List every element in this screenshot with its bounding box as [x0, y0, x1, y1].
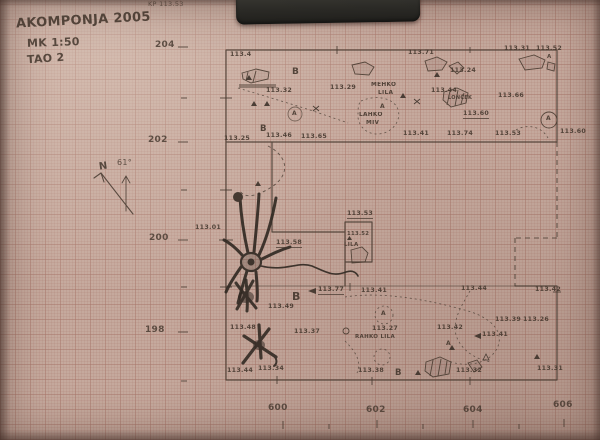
elevation-label: 113.52 — [347, 232, 369, 237]
plan-annotation-labels: 113.4B113.32113.29113.71113.31113.52A113… — [0, 0, 600, 440]
layer-letter-label: B — [395, 369, 402, 378]
note-label: LILA — [378, 91, 393, 97]
elevation-label: 113.52 — [536, 46, 562, 52]
elevation-label: 113.44 — [431, 88, 457, 94]
elevation-label: 113.77 — [318, 287, 344, 295]
note-label: RAHKO LILA — [355, 335, 395, 341]
elevation-label: 113.25 — [224, 136, 250, 142]
note-label: LAHKO — [359, 113, 383, 119]
elevation-label: 113.01 — [195, 225, 221, 231]
layer-letter-label: B — [292, 68, 299, 77]
elevation-label: 113.46 — [266, 133, 292, 139]
elevation-label: 113.44 — [227, 368, 253, 374]
elevation-label: 113.42 — [437, 325, 463, 331]
graph-paper-sheet: AKOMPONJA 2005 MK 1:50 TAO 2 KP 113.53 N… — [0, 0, 600, 440]
layer-letter-label: A — [547, 55, 552, 61]
layer-letter-label: A — [292, 111, 297, 117]
elevation-label: 113.27 — [372, 326, 398, 332]
elevation-label: 113.4 — [230, 52, 251, 58]
layer-letter-label: A — [381, 311, 386, 317]
elevation-label: 113.26 — [523, 317, 549, 323]
elevation-label: 113.71 — [408, 50, 434, 56]
elevation-label: 113.53 — [495, 131, 521, 137]
elevation-label: 113.48 — [230, 325, 256, 331]
elevation-label: 113.32 — [456, 368, 482, 374]
elevation-label: 113.74 — [447, 131, 473, 137]
elevation-label: 113.24 — [450, 68, 476, 74]
elevation-label: 113.65 — [301, 134, 327, 140]
elevation-label: 113.32 — [266, 88, 292, 94]
elevation-label: 113.60 — [463, 111, 489, 119]
elevation-label: 113.39 — [495, 317, 521, 323]
elevation-label: 113.41 — [403, 131, 429, 137]
elevation-label: 113.31 — [537, 366, 563, 372]
elevation-label: 113.53 — [347, 211, 373, 219]
elevation-label: 113.34 — [258, 366, 284, 372]
elevation-label: 113.44 — [461, 286, 487, 292]
note-label: LONČEK — [448, 96, 472, 101]
layer-letter-label: A — [380, 104, 385, 110]
elevation-label: 113.41 — [482, 332, 508, 338]
elevation-label: 113.66 — [498, 93, 524, 99]
elevation-label: 113.58 — [276, 240, 302, 248]
elevation-label: 113.42 — [535, 287, 561, 293]
elevation-label: 113.29 — [330, 85, 356, 91]
layer-letter-label: B — [292, 291, 301, 302]
elevation-label: 113.31 — [504, 46, 530, 52]
elevation-label: 113.37 — [294, 329, 320, 335]
note-label: MEHKO — [371, 83, 396, 89]
note-label: LILA — [344, 243, 359, 249]
elevation-label: 113.49 — [268, 304, 294, 310]
elevation-label: 113.60 — [560, 129, 586, 135]
layer-letter-label: A — [446, 341, 451, 347]
elevation-label: 113.38 — [358, 368, 384, 374]
note-label: MIV — [366, 121, 379, 127]
layer-letter-label: A — [546, 116, 551, 122]
elevation-label: 113.41 — [361, 288, 387, 294]
